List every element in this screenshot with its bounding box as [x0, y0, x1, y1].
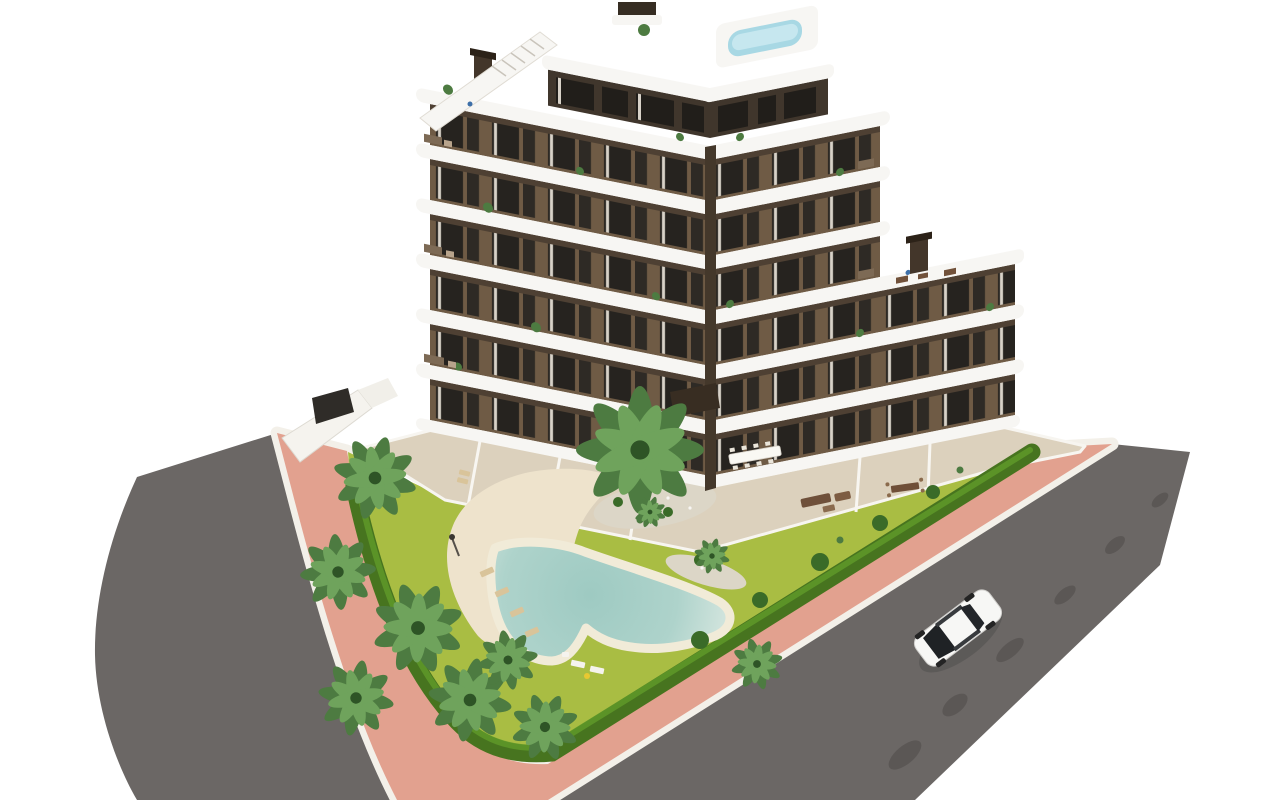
pool-towel — [584, 673, 590, 679]
architectural-render — [0, 0, 1280, 800]
wing-seam — [705, 145, 716, 491]
roof-planter — [638, 24, 650, 36]
person — [468, 102, 473, 107]
